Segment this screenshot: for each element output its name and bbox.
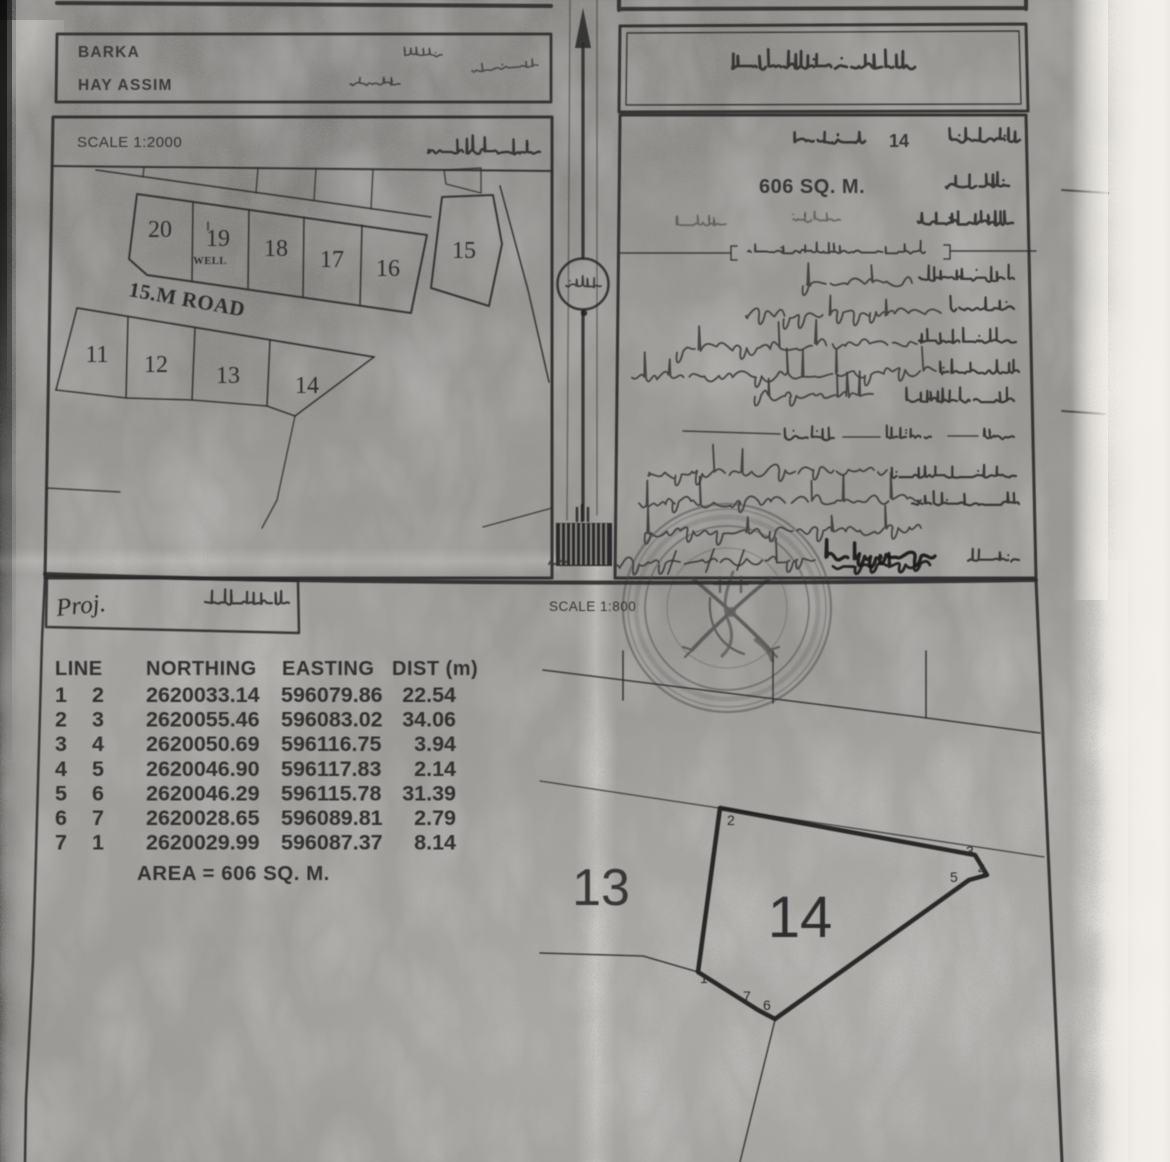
- svg-text:22.54: 22.54: [402, 683, 456, 707]
- svg-text:34.06: 34.06: [402, 708, 456, 732]
- svg-text:17: 17: [320, 247, 344, 273]
- svg-text:2620046.90: 2620046.90: [146, 757, 260, 781]
- svg-text:3: 3: [966, 843, 974, 859]
- svg-text:6: 6: [92, 781, 104, 805]
- svg-text:5: 5: [92, 757, 104, 781]
- svg-text:5: 5: [55, 781, 67, 805]
- svg-text:14: 14: [768, 885, 833, 950]
- svg-text:19: 19: [206, 226, 230, 252]
- svg-text:12: 12: [144, 352, 168, 378]
- svg-text:2620046.29: 2620046.29: [146, 781, 260, 805]
- svg-text:4: 4: [978, 861, 986, 877]
- svg-text:14: 14: [295, 373, 319, 399]
- svg-text:1: 1: [55, 683, 67, 707]
- svg-text:2: 2: [92, 683, 104, 707]
- svg-text:AREA = 606 SQ. M.: AREA = 606 SQ. M.: [137, 862, 330, 885]
- svg-text:2620028.65: 2620028.65: [146, 806, 260, 830]
- svg-text:18: 18: [264, 236, 288, 262]
- svg-text:DIST (m): DIST (m): [392, 658, 478, 680]
- svg-text:8.14: 8.14: [414, 831, 456, 855]
- svg-text:SCALE 1:2000: SCALE 1:2000: [77, 134, 182, 151]
- svg-text:7: 7: [92, 806, 104, 830]
- svg-text:EASTING: EASTING: [282, 658, 374, 680]
- svg-text:6: 6: [55, 806, 67, 830]
- svg-text:14: 14: [889, 131, 909, 151]
- svg-text:596116.75: 596116.75: [281, 732, 381, 756]
- svg-text:11: 11: [85, 342, 108, 368]
- svg-text:5: 5: [950, 869, 958, 885]
- svg-text:596083.02: 596083.02: [281, 708, 383, 732]
- svg-text:7: 7: [743, 988, 751, 1004]
- svg-text:13: 13: [572, 859, 630, 917]
- svg-text:606 SQ. M.: 606 SQ. M.: [759, 176, 865, 198]
- svg-text:4: 4: [55, 757, 67, 781]
- svg-text:2.14: 2.14: [414, 757, 456, 781]
- svg-text:NORTHING: NORTHING: [146, 658, 257, 680]
- svg-text:15: 15: [452, 238, 476, 264]
- svg-text:SCALE 1:800: SCALE 1:800: [549, 599, 636, 614]
- svg-text:596117.83: 596117.83: [281, 757, 381, 781]
- svg-text:2620033.14: 2620033.14: [146, 683, 260, 707]
- svg-text:HAY ASSIM: HAY ASSIM: [78, 77, 173, 94]
- svg-text:3.94: 3.94: [414, 732, 456, 756]
- svg-text:2: 2: [727, 812, 735, 828]
- svg-text:4: 4: [92, 732, 104, 756]
- svg-text:WELL: WELL: [193, 256, 227, 267]
- svg-text:1: 1: [700, 970, 708, 986]
- svg-text:596087.37: 596087.37: [281, 831, 383, 855]
- svg-text:7: 7: [55, 831, 67, 855]
- svg-text:2.79: 2.79: [414, 806, 456, 830]
- svg-text:3: 3: [55, 732, 67, 756]
- svg-text:Proj.: Proj.: [54, 590, 107, 622]
- svg-text:BARKA: BARKA: [78, 44, 140, 61]
- svg-text:13: 13: [216, 363, 240, 389]
- svg-text:596089.81: 596089.81: [281, 806, 383, 830]
- svg-text:2620055.46: 2620055.46: [146, 708, 260, 732]
- svg-text:2: 2: [55, 708, 67, 732]
- svg-text:3: 3: [92, 708, 104, 732]
- svg-text:1: 1: [92, 831, 104, 855]
- svg-text:596079.86: 596079.86: [281, 683, 383, 707]
- svg-text:LINE: LINE: [55, 658, 103, 680]
- svg-text:2620050.69: 2620050.69: [146, 732, 260, 756]
- svg-text:6: 6: [763, 997, 771, 1013]
- svg-text:596115.78: 596115.78: [281, 781, 381, 805]
- svg-text:20: 20: [148, 217, 172, 243]
- svg-text:16: 16: [376, 256, 400, 282]
- svg-text:2620029.99: 2620029.99: [146, 831, 260, 855]
- svg-text:31.39: 31.39: [402, 781, 456, 805]
